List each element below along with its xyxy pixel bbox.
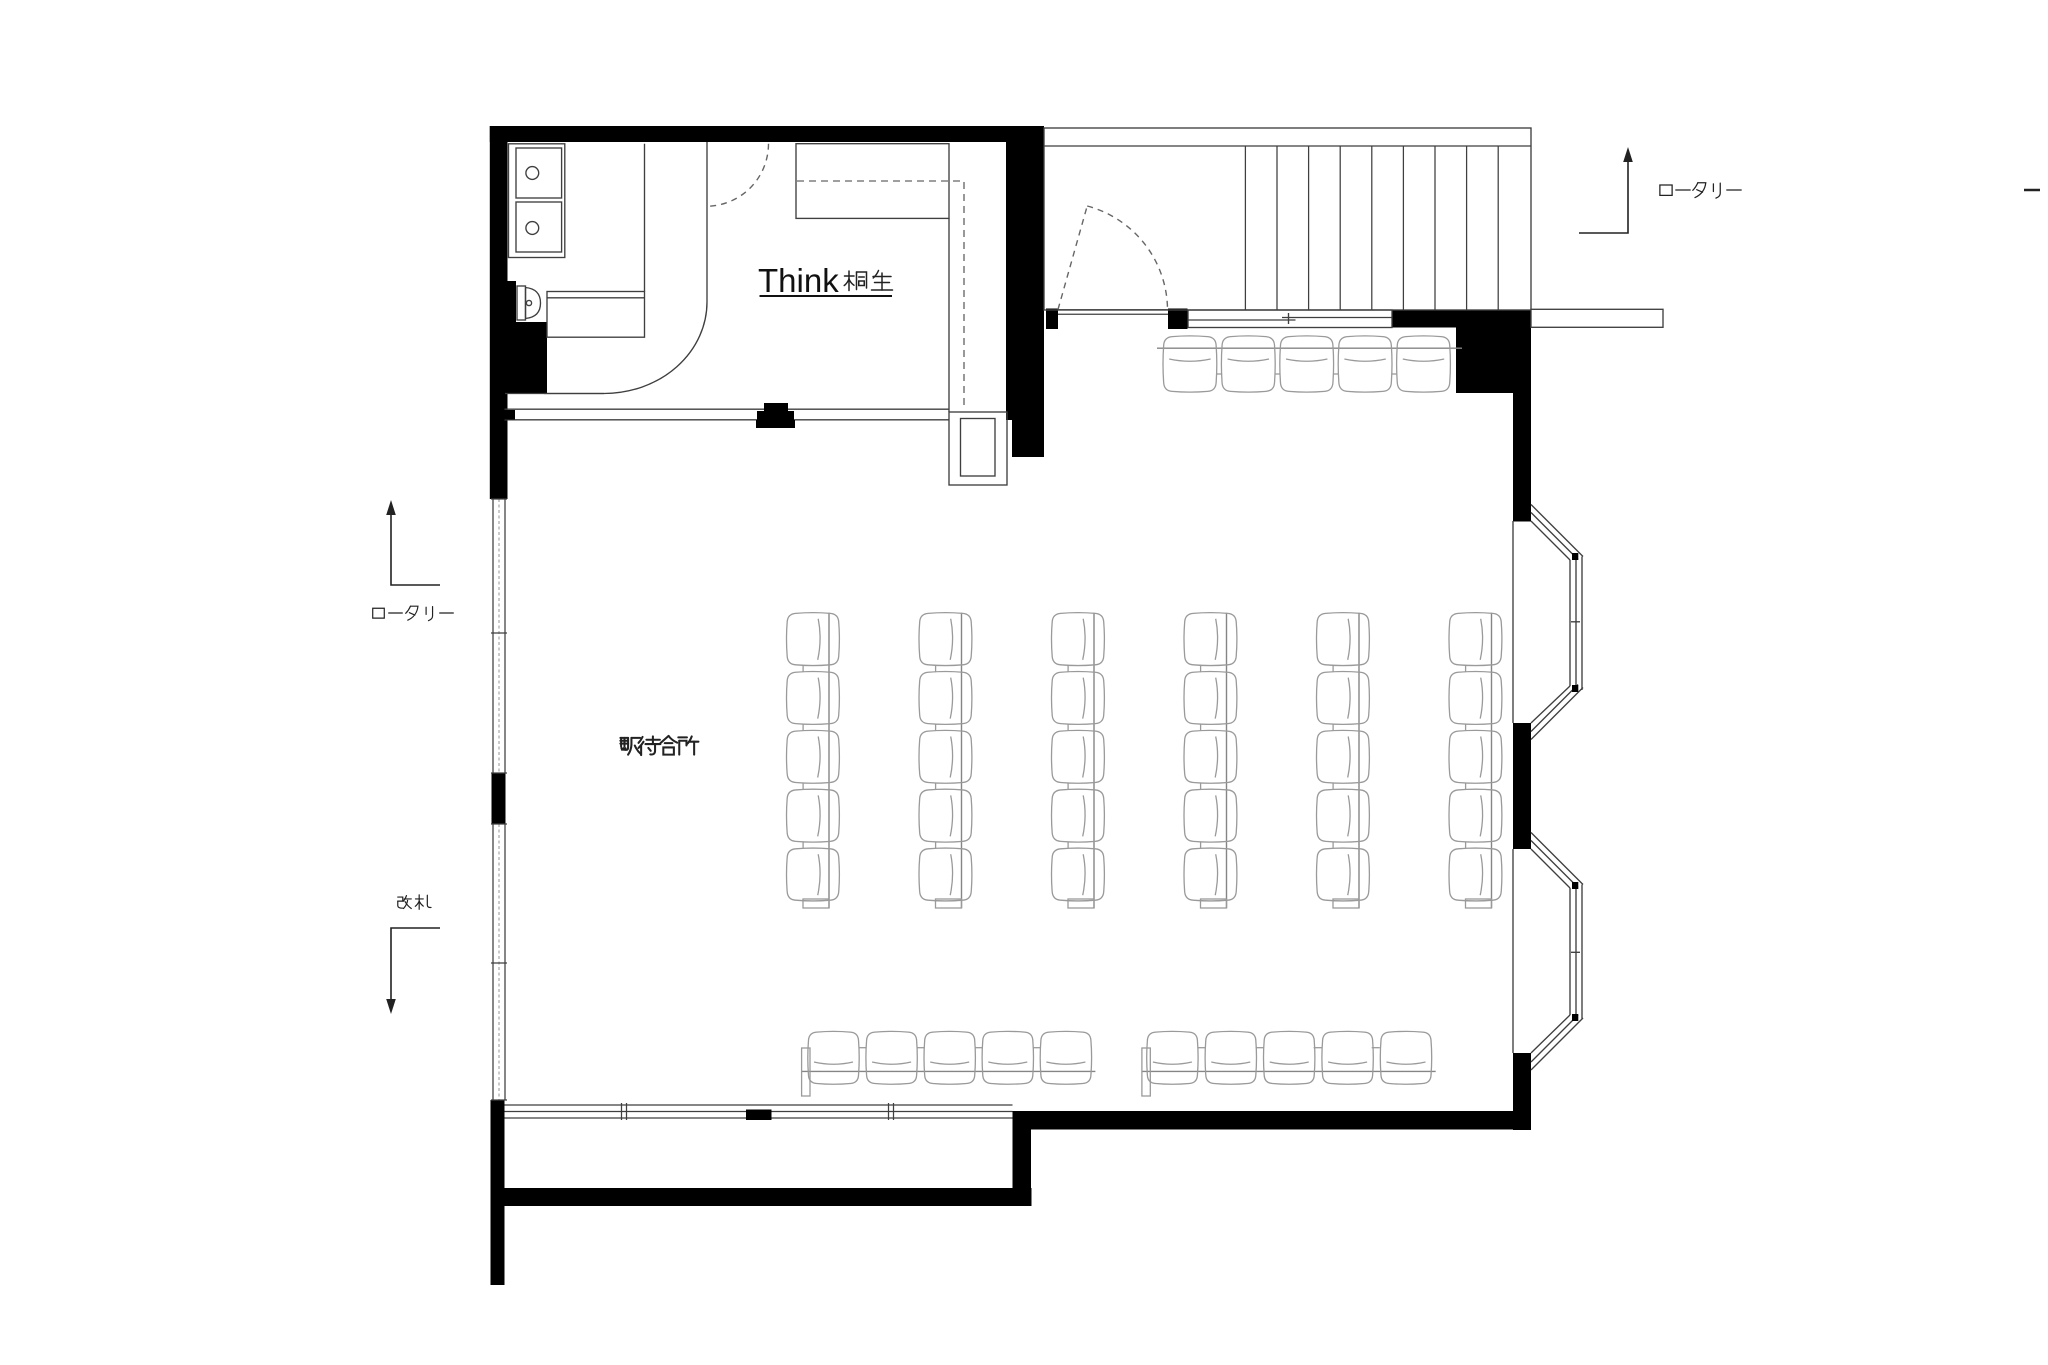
svg-text:Think: Think [758,262,839,299]
